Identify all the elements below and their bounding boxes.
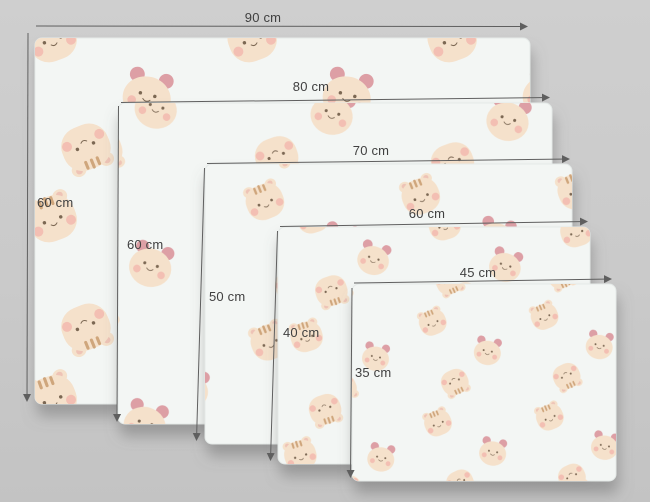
sheet-2-width-label: 80 cm [293,80,329,93]
sheet-5-height-label: 35 cm [355,366,391,379]
sheet-3-width-label: 70 cm [353,144,389,157]
sheet-4-height-label: 40 cm [283,326,319,339]
sheet-3-height-label: 50 cm [209,290,245,303]
diagram-canvas [0,0,650,502]
sheet-1-height-label: 60 cm [37,196,73,209]
fabric-size-comparison-diagram: 90 cm 60 cm 80 cm 60 cm 70 cm 50 cm 60 c… [0,0,650,502]
sheet-4-width-label: 60 cm [409,207,445,220]
sheet-1-width-label: 90 cm [245,11,281,24]
sheet-2-height-label: 60 cm [127,238,163,251]
height-arrow-60cm-sheet1 [27,33,28,401]
sheet-5-width-label: 45 cm [460,266,496,279]
sheet-45x35 [352,284,616,481]
width-arrow-90cm [36,26,527,27]
